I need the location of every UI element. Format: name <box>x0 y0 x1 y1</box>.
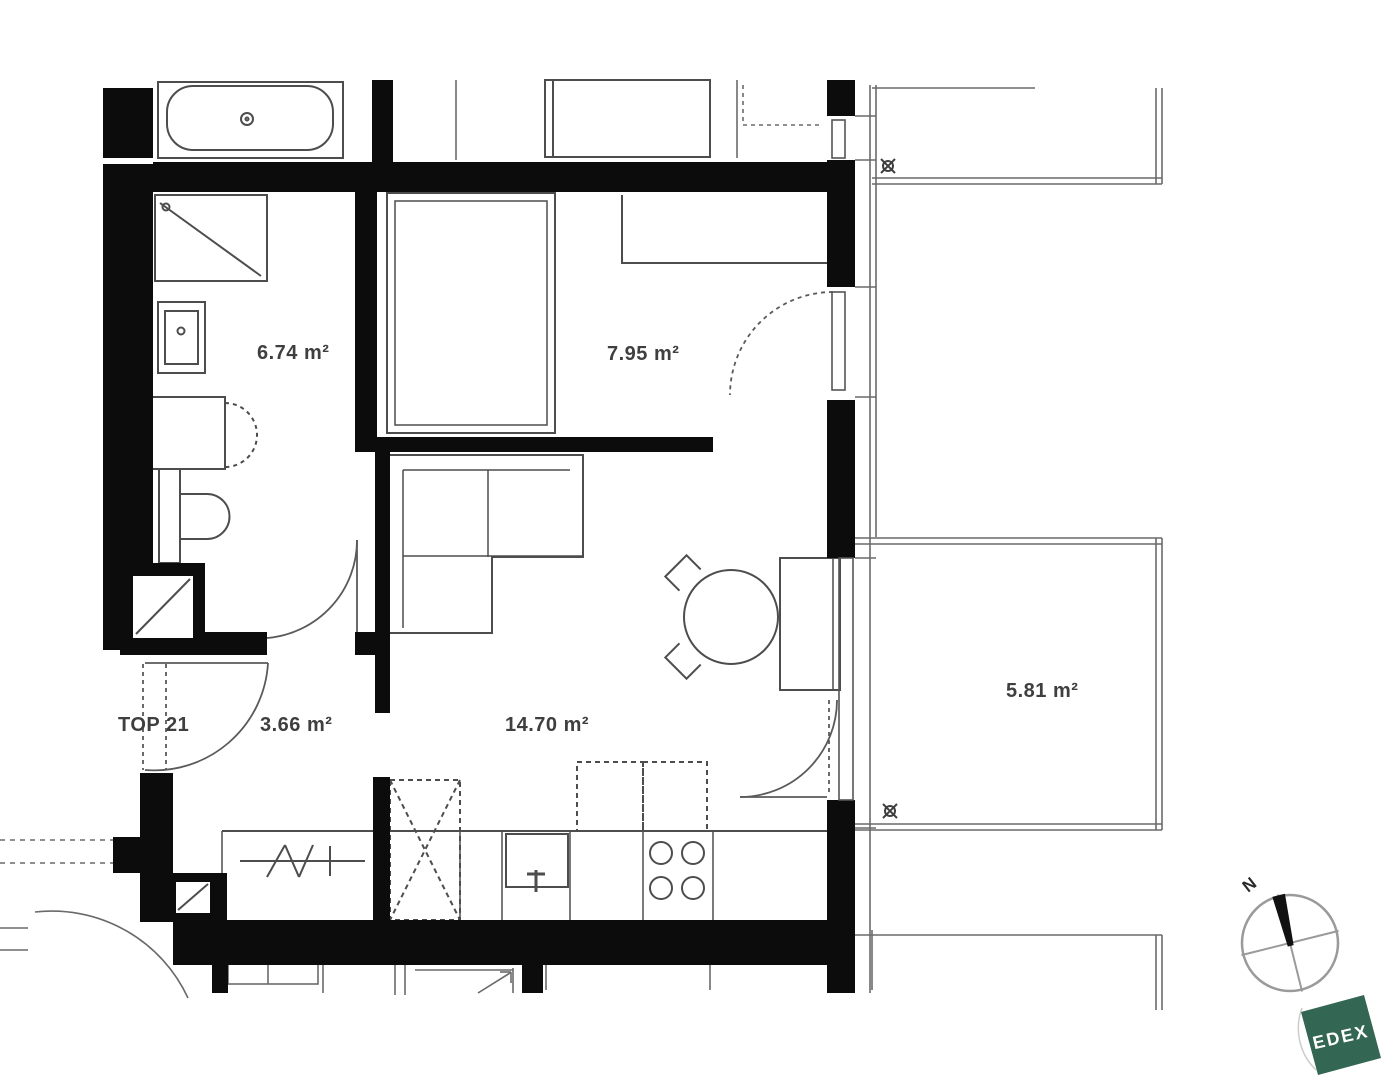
window-living <box>839 558 853 800</box>
wall-right <box>827 400 855 558</box>
wall-top <box>153 162 855 192</box>
north-label: N <box>1239 874 1260 897</box>
bathroom-door <box>267 540 357 638</box>
hall-closet <box>222 831 827 877</box>
bed <box>387 193 555 433</box>
wall-pier <box>212 963 228 993</box>
wall-bedroom-living <box>355 437 713 452</box>
wall-right <box>827 800 855 993</box>
compass-needle <box>1272 894 1297 948</box>
labels-layer: TOP 21 3.66 m² 6.74 m² 7.95 m² 14.70 m² … <box>118 342 1078 736</box>
wall-right <box>827 80 855 116</box>
toilet <box>159 469 230 563</box>
area-label-bedroom: 7.95 m² <box>607 343 679 365</box>
drain-icon <box>883 804 897 818</box>
tall-unit-fridge <box>390 780 460 920</box>
wall-right <box>827 160 855 287</box>
dining-table <box>665 555 778 678</box>
sofa <box>388 455 583 633</box>
area-label-bathroom: 6.74 m² <box>257 342 329 364</box>
bathtub <box>158 82 343 158</box>
area-label-hallway: 3.66 m² <box>260 714 332 736</box>
kitchen-counter <box>390 762 713 920</box>
upper-balcony-railing <box>872 88 1162 184</box>
washbasin-sink <box>158 302 205 373</box>
wall-bottom <box>173 920 855 965</box>
unit-label: TOP 21 <box>118 714 189 736</box>
exterior-structure-lines <box>0 80 1162 1010</box>
fixtures-layer <box>152 80 840 920</box>
lower-balcony-lines <box>855 935 1162 1010</box>
compass-icon: N <box>1229 874 1350 1004</box>
drain-symbols <box>881 159 897 818</box>
wall-pier <box>522 963 543 993</box>
floor-plan-page: TOP 21 3.66 m² 6.74 m² 7.95 m² 14.70 m² … <box>0 0 1382 1080</box>
upper-cabinets <box>577 762 707 831</box>
drain-icon <box>881 159 895 173</box>
floor-plan-canvas: TOP 21 3.66 m² 6.74 m² 7.95 m² 14.70 m² … <box>0 0 1382 1080</box>
shower <box>155 195 267 281</box>
wall-bath-bedroom <box>355 192 377 442</box>
doors-layer <box>143 292 837 797</box>
logo: EDEX <box>1298 995 1381 1075</box>
balcony-door <box>740 700 837 797</box>
washing-machine <box>152 397 257 469</box>
area-label-living: 14.70 m² <box>505 714 589 736</box>
neighbor-door-swing <box>35 911 188 998</box>
bedroom-window-swing <box>730 292 833 395</box>
neighbor-bed <box>545 80 710 157</box>
wardrobe <box>622 195 827 263</box>
wall-hall-kitchen <box>373 777 390 922</box>
wall-neighbor-top <box>372 80 393 164</box>
kitchen-sink <box>506 834 568 892</box>
window-bedroom <box>832 292 845 390</box>
wall-door-jamb <box>355 632 377 655</box>
sideboard <box>780 558 840 690</box>
wall-stub <box>113 837 173 873</box>
area-label-balcony: 5.81 m² <box>1006 680 1078 702</box>
stove <box>650 842 704 899</box>
window-neighbor <box>832 120 845 158</box>
neighbor-unit-above <box>456 80 822 160</box>
wall-hall-living <box>375 452 390 713</box>
